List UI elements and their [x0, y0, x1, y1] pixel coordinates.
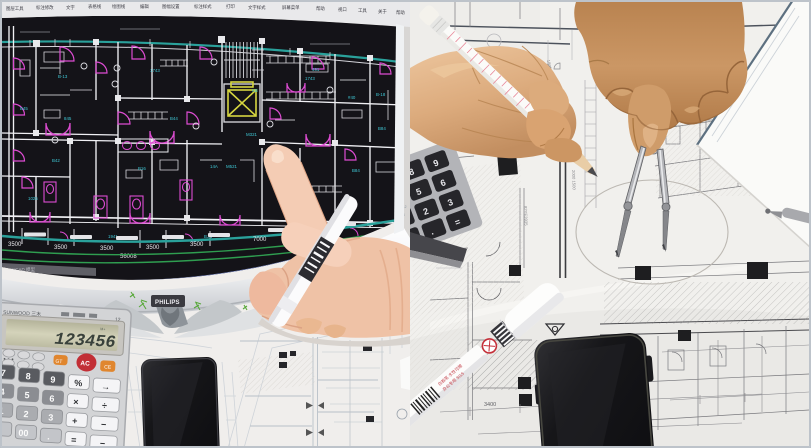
svg-text:#40: #40 [348, 95, 356, 100]
svg-text:845: 845 [64, 116, 72, 121]
svg-text:B84: B84 [352, 168, 360, 173]
svg-text:M321: M321 [246, 132, 258, 137]
svg-text:视口: 视口 [338, 6, 347, 13]
svg-text:1025: 1025 [28, 196, 38, 201]
svg-text:帮助: 帮助 [316, 5, 325, 12]
svg-text:3: 3 [48, 412, 54, 422]
svg-text:B-18: B-18 [376, 92, 386, 97]
svg-text:屏幕菜单: 屏幕菜单 [282, 4, 300, 11]
svg-text:3500: 3500 [146, 245, 160, 251]
svg-text:2000 1500: 2000 1500 [571, 170, 577, 191]
svg-text:编辑: 编辑 [140, 3, 149, 10]
svg-text:KB: KB [252, 88, 258, 93]
svg-text:491: 491 [312, 67, 320, 72]
svg-text:8: 8 [25, 371, 31, 381]
svg-text:1743: 1743 [305, 76, 315, 81]
svg-text:表格线: 表格线 [88, 3, 102, 10]
svg-text:AC: AC [80, 360, 90, 368]
svg-text:1743: 1743 [150, 68, 160, 73]
svg-text:B42: B42 [52, 158, 60, 163]
svg-text:3500: 3500 [190, 242, 204, 248]
svg-text:×: × [73, 397, 79, 407]
svg-text:M+: M+ [100, 327, 105, 331]
svg-text:B44: B44 [170, 116, 178, 121]
svg-text:3400: 3400 [484, 402, 496, 408]
svg-text:00: 00 [18, 428, 29, 439]
svg-text:标注修改: 标注修改 [36, 4, 54, 11]
svg-text:GT: GT [55, 359, 62, 365]
svg-text:+: + [72, 416, 78, 426]
svg-text:图幅设置: 图幅设置 [162, 3, 180, 10]
svg-text:123456: 123456 [54, 331, 116, 353]
svg-text:%: % [74, 378, 83, 388]
svg-text:14A: 14A [210, 164, 218, 169]
svg-text:B84: B84 [378, 126, 386, 131]
svg-text:标注样式: 标注样式 [194, 3, 212, 10]
svg-text:B-13: B-13 [58, 74, 68, 79]
svg-text:B16: B16 [138, 166, 146, 171]
svg-text:3500: 3500 [8, 242, 22, 248]
svg-text:CE: CE [104, 364, 112, 370]
svg-text:82YE3935: 82YE3935 [523, 206, 529, 226]
svg-text:绘图线: 绘图线 [112, 3, 126, 10]
svg-text:3500: 3500 [54, 245, 68, 251]
svg-text:2: 2 [23, 409, 29, 419]
svg-text:=: = [71, 435, 77, 445]
svg-text:文字: 文字 [66, 4, 75, 11]
svg-text:→: → [101, 381, 111, 391]
svg-text:6: 6 [49, 393, 55, 403]
svg-text:文字样式: 文字样式 [248, 4, 266, 11]
svg-text:5: 5 [24, 390, 30, 400]
svg-text:帮助: 帮助 [396, 9, 405, 16]
svg-text:3500: 3500 [100, 246, 114, 252]
svg-text:M521: M521 [226, 164, 238, 169]
svg-text:B45: B45 [20, 106, 28, 111]
svg-text:关于: 关于 [378, 8, 387, 15]
svg-text:7000: 7000 [253, 237, 267, 243]
svg-text:9: 9 [50, 374, 56, 384]
svg-text:打印: 打印 [226, 3, 235, 10]
svg-text:PHILIPS: PHILIPS [155, 300, 180, 306]
svg-text:−: − [101, 419, 107, 429]
svg-text:÷: ÷ [102, 400, 108, 410]
